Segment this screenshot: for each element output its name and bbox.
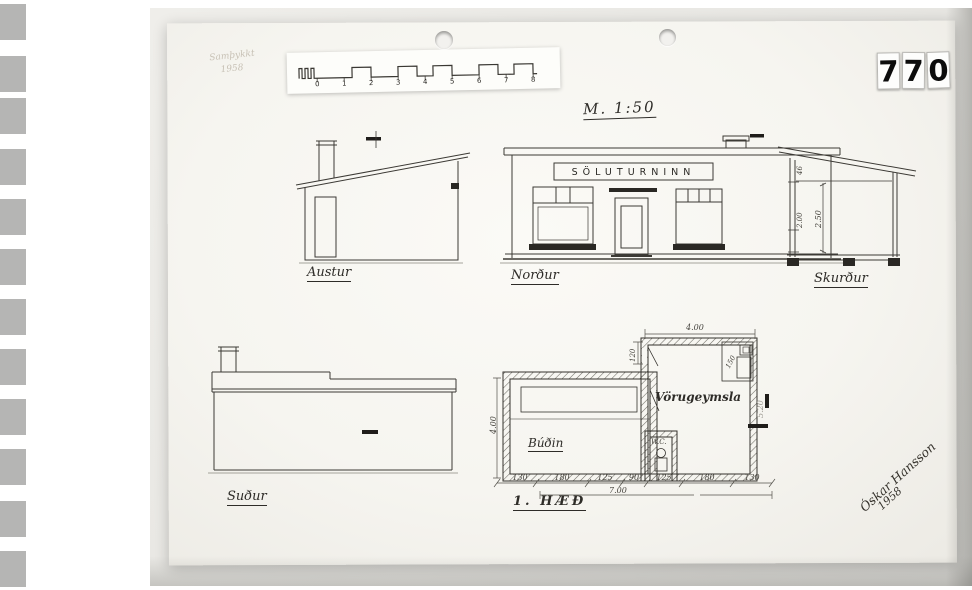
- section-dim-0: 46: [796, 166, 804, 175]
- section-label-text: Skurður: [814, 271, 868, 288]
- dim-chain-5: 180: [692, 473, 722, 482]
- room-label-wc: W.C.: [651, 438, 667, 446]
- approval-note: Samþykkt 1958: [209, 48, 257, 79]
- scale-tick: 5: [446, 77, 458, 85]
- dim-small-top: 120: [629, 349, 637, 362]
- scale-bar: 0 1 2 3 4 5 6 7 8: [287, 47, 561, 94]
- room-label-shop-text: Búðin: [528, 436, 563, 452]
- section-label: Skurður: [814, 271, 868, 286]
- section-drawing: [778, 147, 916, 266]
- section-dim-1: 2.00: [796, 212, 804, 228]
- archive-number: 7 7 0: [877, 51, 951, 89]
- scale-tick: 2: [365, 79, 377, 87]
- south-elevation-drawing: [208, 347, 458, 473]
- archive-digit: 0: [926, 51, 950, 89]
- punch-hole: [659, 29, 676, 46]
- scale-title: M. 1:50: [583, 98, 656, 119]
- dim-total: 7.00: [609, 486, 627, 495]
- room-label-storage: Vörugeymsla: [655, 390, 741, 404]
- north-elevation-drawing: [500, 134, 846, 263]
- scale-tick: 6: [473, 77, 485, 85]
- building-sign: SÖLUTURNINN: [554, 164, 713, 180]
- scale-bar-ruler: [287, 47, 561, 94]
- dim-top: 4.00: [686, 323, 704, 332]
- scale-tick: 4: [419, 78, 431, 86]
- scale-tick: 7: [500, 76, 512, 84]
- scale-tick: 3: [392, 78, 404, 86]
- scale-tick: 0: [311, 80, 323, 88]
- dim-chain-6: 130: [737, 473, 767, 482]
- scale-title-text: M. 1:50: [583, 98, 656, 121]
- scanned-drawing-canvas: Samþykkt 1958 0 1 2 3 4 5 6 7 8 7 7 0 M.…: [0, 0, 972, 590]
- scale-tick: 8: [527, 76, 539, 84]
- dim-chain-3: 90: [619, 473, 649, 482]
- room-label-shop: Búðin: [528, 436, 563, 450]
- floor-plan-label: 1. HÆÐ: [513, 494, 586, 509]
- dim-chain-0: 130: [505, 473, 535, 482]
- east-elevation-label: Austur: [307, 265, 351, 280]
- dim-chain-4: 125: [649, 473, 679, 482]
- dim-chain-1: 180: [547, 473, 577, 482]
- scale-tick: 1: [338, 80, 350, 88]
- dim-chain-2: 125: [590, 473, 620, 482]
- archive-digit: 7: [902, 52, 925, 89]
- dim-right: 5.20: [756, 400, 765, 418]
- punch-hole: [435, 31, 453, 49]
- north-elevation-label-text: Norður: [511, 268, 559, 285]
- section-dim-2: 2.50: [814, 210, 823, 228]
- floor-plan-label-text: 1. HÆÐ: [513, 494, 586, 511]
- south-elevation-label: Suður: [227, 489, 267, 504]
- east-elevation-label-text: Austur: [307, 265, 351, 282]
- dim-left: 4.00: [489, 416, 498, 434]
- north-elevation-label: Norður: [511, 268, 559, 283]
- east-elevation-drawing: [296, 131, 470, 263]
- archive-digit: 7: [877, 52, 901, 89]
- south-elevation-label-text: Suður: [227, 489, 267, 506]
